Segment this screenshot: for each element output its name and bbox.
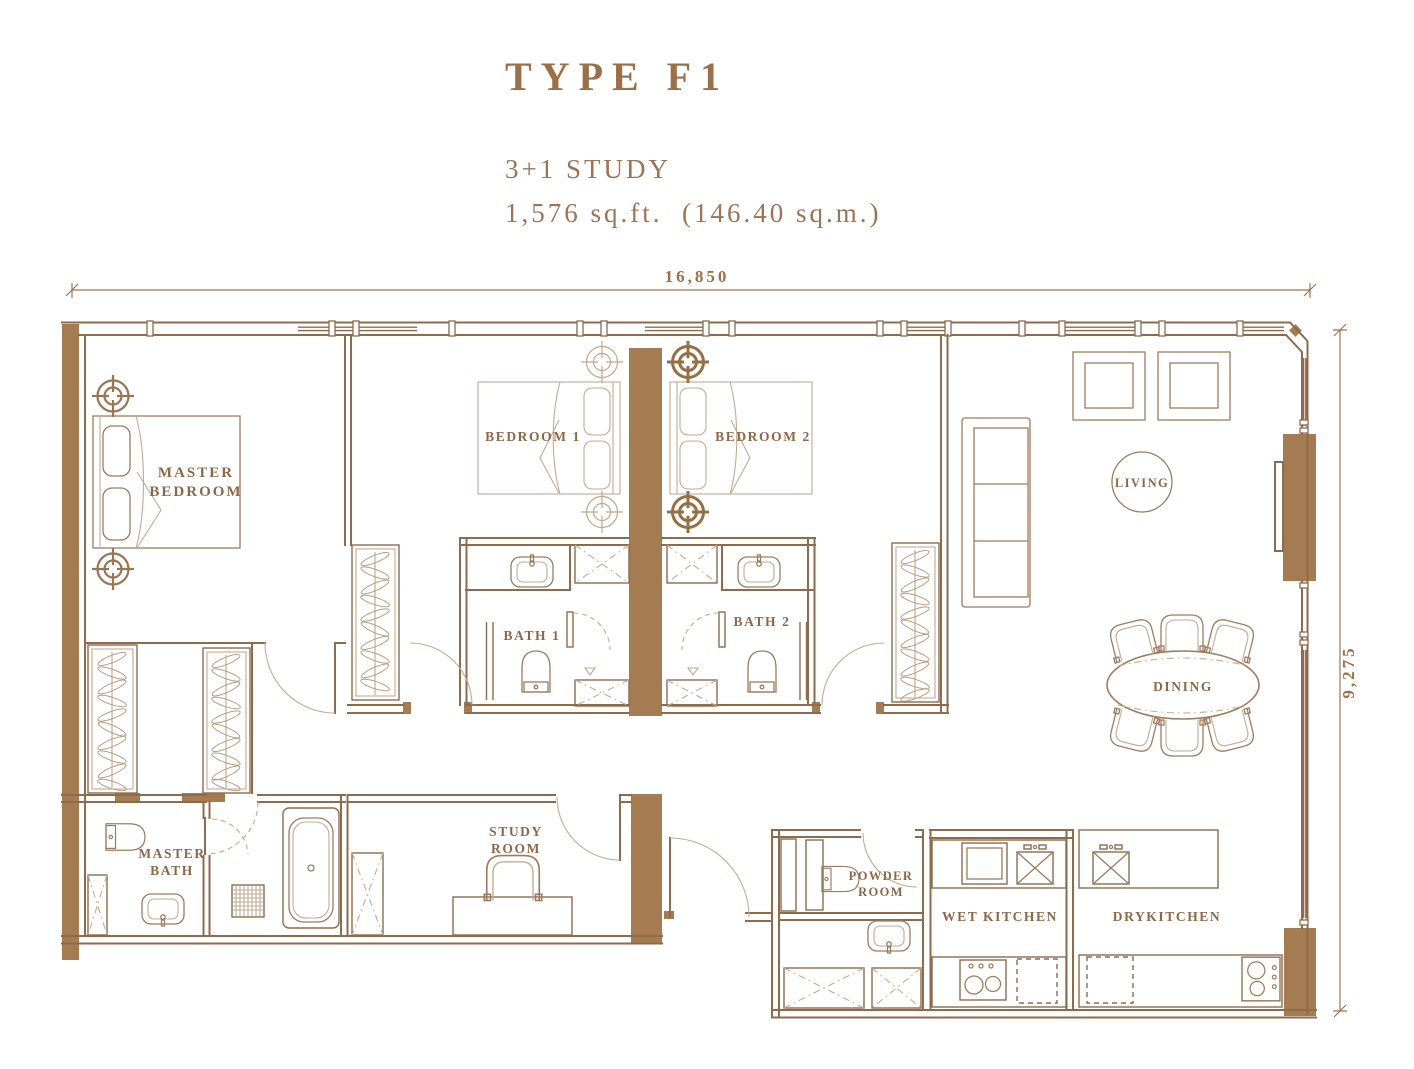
room-label-bath2: BATH 2: [734, 614, 791, 629]
stove-wet-kitchen: [960, 960, 1006, 1000]
dining-chair: [1106, 617, 1159, 663]
sink-master-bath: [142, 894, 184, 926]
floor-plan: TYPE F1 3+1 STUDY 1,576 sq.ft. (146.40 s…: [0, 0, 1414, 1069]
room-labels: MASTER BEDROOM BEDROOM 1 BEDROOM 2 BATH …: [138, 429, 1221, 924]
master-bed: [93, 416, 240, 548]
furniture: [88, 341, 1283, 1008]
room-label-dining: DINING: [1153, 679, 1213, 694]
title-block: TYPE F1 3+1 STUDY 1,576 sq.ft. (146.40 s…: [505, 54, 882, 228]
room-label-bedroom2: BEDROOM 2: [715, 429, 811, 444]
plan-title: TYPE F1: [505, 54, 729, 99]
room-label-powder: ROOM: [858, 885, 904, 899]
column-target-icon: [92, 548, 134, 590]
stove-dry-kitchen: [1242, 957, 1280, 1001]
sink-bath2: [738, 555, 780, 587]
room-label-master-bedroom: MASTER: [158, 465, 234, 481]
study-chair: [484, 856, 542, 901]
dining-chair: [1106, 708, 1159, 754]
dining-chair: [1204, 708, 1257, 754]
dining-chair: [1159, 615, 1205, 651]
sink-powder: [868, 921, 910, 953]
column-target-icon: [581, 491, 623, 533]
dining-chair: [1159, 720, 1205, 756]
room-label-wet-kitchen: WET KITCHEN: [942, 909, 1058, 924]
toilet-bath1: [522, 651, 550, 692]
column-target-icon: [667, 491, 709, 533]
plan-subtitle: 3+1 STUDY: [505, 154, 671, 184]
armchair-2: [1158, 352, 1230, 420]
armchair-1: [1073, 352, 1145, 420]
floor-plan-page: TYPE F1 3+1 STUDY 1,576 sq.ft. (146.40 s…: [0, 0, 1414, 1069]
room-label-study: ROOM: [491, 841, 541, 856]
dimension-width-label: 16,850: [665, 267, 730, 286]
bathtub: [283, 808, 339, 928]
column-target-icon: [581, 341, 623, 383]
plan-area: 1,576 sq.ft. (146.40 sq.m.): [505, 198, 882, 228]
wardrobe-bedroom2: [892, 543, 939, 704]
room-label-powder: POWDER: [849, 869, 914, 883]
toilet-bath2: [748, 651, 776, 692]
dimension-height-label: 9,275: [1339, 645, 1358, 698]
room-label-living: LIVING: [1115, 476, 1169, 490]
study-closet: [352, 853, 383, 935]
bath1-fixtures: [511, 555, 553, 692]
room-label-master-bedroom: BEDROOM: [149, 484, 242, 500]
kitchen-sink-dry: [1093, 845, 1129, 884]
room-label-master-bath: BATH: [150, 863, 194, 878]
column-target-icon: [667, 341, 709, 383]
room-label-study: STUDY: [489, 824, 543, 839]
room-label-master-bath: MASTER: [138, 846, 205, 861]
wardrobe-bedroom1: [352, 545, 399, 700]
sofa: [962, 418, 1030, 607]
window-mullions: [147, 321, 1308, 925]
study-desk: [453, 897, 572, 935]
sink-bath1: [511, 555, 553, 587]
dining-chair: [1204, 617, 1257, 663]
column-target-icon: [92, 375, 134, 417]
room-label-bedroom1: BEDROOM 1: [485, 429, 581, 444]
tv-panel: [1275, 462, 1283, 551]
wardrobe-dressing-2: [203, 648, 250, 793]
master-bath-fixtures: [88, 808, 339, 935]
room-label-bath1: BATH 1: [504, 628, 561, 643]
study-room-furniture: [352, 853, 572, 935]
room-label-dry-kitchen: DRYKITCHEN: [1113, 909, 1222, 924]
powder-room-fixtures: [781, 839, 921, 1008]
wardrobe-dressing-1: [88, 645, 137, 793]
kitchen-sink-wet: [1017, 845, 1053, 884]
